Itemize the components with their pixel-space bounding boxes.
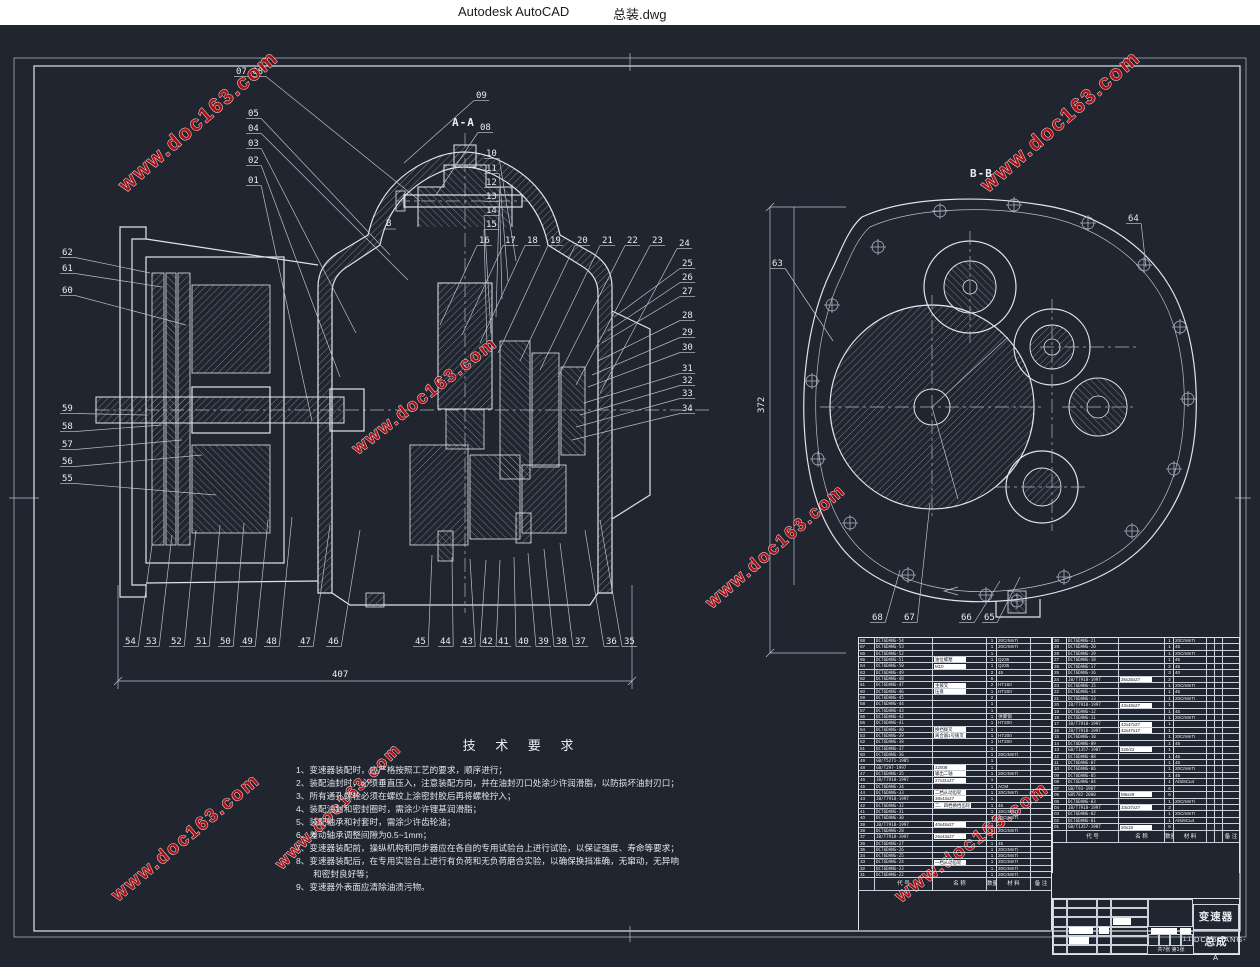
bom-cell: 45: [1174, 754, 1207, 759]
bom-cell: DCT6DANG-44: [875, 701, 933, 706]
bom-cell: HT200: [997, 689, 1031, 694]
bom-cell: [997, 777, 1031, 782]
bom-cell: 弹簧钢: [997, 714, 1031, 719]
bom-cell: 1: [987, 828, 997, 833]
bom-header-cell: 材 料: [997, 878, 1031, 890]
section-label-aa: A-A: [452, 116, 475, 129]
svg-text:27: 27: [682, 287, 693, 297]
bom-cell: 一档从动齿轮: [933, 859, 987, 864]
part-callout-51: 51: [194, 525, 220, 647]
bom-cell: 20CrMnTi: [1174, 811, 1207, 816]
bom-cell: [1215, 696, 1223, 701]
bom-cell: 45: [1174, 741, 1207, 746]
bom-cell: [1031, 803, 1051, 808]
bom-cell: [1223, 709, 1239, 714]
bom-cell: [933, 872, 987, 877]
svg-text:36: 36: [606, 637, 617, 647]
bom-cell: [1207, 709, 1215, 714]
bom-cell: 46: [859, 777, 875, 782]
bom-cell: [1119, 664, 1165, 669]
bom-cell: Q235: [997, 663, 1031, 668]
bom-cell: [1207, 683, 1215, 688]
bolt-hole-symbol: [824, 297, 840, 313]
bom-cell: 45: [1174, 644, 1207, 649]
bom-cell: DCT6DANG-06: [1067, 766, 1119, 771]
bom-cell: 45: [997, 841, 1031, 846]
bom-cell: [933, 714, 987, 719]
bom-cell: [1207, 638, 1215, 643]
part-callout-19: 19: [498, 236, 563, 353]
bom-cell: [1215, 670, 1223, 675]
bom-cell: 1: [987, 733, 997, 738]
svg-text:02: 02: [248, 156, 259, 166]
svg-text:68: 68: [872, 613, 883, 623]
bom-cell: 12: [1053, 754, 1067, 759]
bom-cell: 42x47x27: [1119, 721, 1165, 726]
bom-cell: DCT6DANG-19: [1067, 651, 1119, 656]
bom-cell: 1: [1165, 721, 1174, 726]
bom-cell: 43x48x27: [1119, 702, 1165, 707]
bom-cell: [1119, 638, 1165, 643]
bom-cell: [1174, 805, 1207, 810]
svg-text:10: 10: [486, 149, 497, 159]
bom-cell: [1031, 714, 1051, 719]
bom-cell: [1031, 638, 1051, 643]
section-view-b: B-B 37: [757, 167, 1196, 657]
bom-cell: 1: [1165, 811, 1174, 816]
bom-cell: [1119, 734, 1165, 739]
bom-cell: DCT6DANG-52: [875, 651, 933, 656]
bom-cell: DCT6DANG-43: [875, 708, 933, 713]
bom-cell: JB/T7918-1997: [1067, 721, 1119, 726]
bom-cell: DCT6DANG-16: [1067, 670, 1119, 675]
svg-text:58: 58: [62, 422, 73, 432]
bom-header-cell: 代 号: [1067, 831, 1119, 842]
bom-cell: [1223, 638, 1239, 643]
technical-requirements: 技 术 要 求 1、变速器装配时，应严格按照工艺的要求，顺序进行；2、装配油封时…: [296, 735, 748, 894]
bom-cell: [1223, 689, 1239, 694]
bom-cell: DCT6DANG-39: [875, 733, 933, 738]
bom-cell: [1031, 727, 1051, 732]
bom-cell: DCT6DANG-33: [875, 790, 933, 795]
svg-text:48: 48: [266, 637, 277, 647]
bom-cell: 49: [859, 758, 875, 763]
bom-cell: JB/T7918-1997: [1067, 805, 1119, 810]
bom-cell: 32: [859, 866, 875, 871]
bom-cell: [1223, 741, 1239, 746]
svg-text:39: 39: [538, 637, 549, 647]
bom-cell: DCT6DANG-02: [1067, 811, 1119, 816]
bolt-hole-symbol: [1056, 569, 1072, 585]
bom-cell: [1119, 741, 1165, 746]
tech-requirement-line: 2、装配油封时，必须垂直压入，注意装配方向，并在油封刃口处涂少许润滑脂，以防损坏…: [296, 777, 748, 790]
bom-cell: DCT6DANG-51: [875, 657, 933, 662]
svg-text:57: 57: [62, 440, 73, 450]
bom-cell: [1223, 677, 1239, 682]
bom-cell: 66: [859, 651, 875, 656]
bom-cell: [997, 758, 1031, 763]
bom-cell: 45: [1174, 709, 1207, 714]
bom-cell: ACM: [997, 784, 1031, 789]
revision-grid-cell: [1067, 945, 1097, 954]
bom-header-cell: [1053, 831, 1067, 842]
part-name-highlight: M6x28: [1120, 792, 1152, 797]
bom-cell: [1223, 811, 1239, 816]
bom-cell: [1207, 811, 1215, 816]
svg-text:22: 22: [627, 236, 638, 246]
bolt-hole-symbol: [1006, 197, 1022, 213]
watermark-text: www.doc163.com: [701, 480, 850, 613]
bom-cell: 1: [1165, 734, 1174, 739]
bom-cell: [1174, 702, 1207, 707]
bom-cell: 2: [987, 682, 997, 687]
svg-text:16: 16: [479, 236, 490, 246]
svg-text:40: 40: [518, 637, 529, 647]
part-callout-45: 45: [413, 555, 432, 647]
bom-cell: 1: [1165, 638, 1174, 643]
bom-cell: [1031, 733, 1051, 738]
bom-cell: 45: [997, 803, 1031, 808]
bom-cell: 20CrMnTi: [997, 872, 1031, 877]
tech-requirement-line: 9、变速器外表面应清除油渍污物。: [296, 881, 748, 894]
revision-grid-cell: [1111, 908, 1148, 917]
bom-cell: HT200: [997, 720, 1031, 725]
bom-cell: 28: [1053, 651, 1067, 656]
bom-cell: [1207, 747, 1215, 752]
part-callout-53: 53: [144, 535, 172, 647]
part-callout-52: 52: [169, 530, 196, 647]
part-callout-67: 67: [902, 503, 930, 623]
bom-cell: 18: [1053, 715, 1067, 720]
part-callout-38: 38: [544, 549, 569, 647]
bom-cell: [1207, 689, 1215, 694]
bom-cell: 2: [1165, 664, 1174, 669]
bom-cell: [1031, 847, 1051, 852]
revision-grid-cell: [1097, 917, 1111, 926]
bom-cell: [1174, 677, 1207, 682]
bom-cell: 36: [859, 841, 875, 846]
bom-cell: 45: [1174, 664, 1207, 669]
bolt-hole-symbol: [804, 373, 820, 389]
title-block-drawing-number: DCT6DANG-A: [1193, 930, 1239, 954]
bom-cell: HT200: [997, 733, 1031, 738]
bolt-hole-symbol: [932, 203, 948, 219]
bom-cell: JB/T7918-1997: [875, 777, 933, 782]
bom-header-cell: 代 号: [875, 878, 933, 890]
bom-cell: 20CrMnTi: [1174, 715, 1207, 720]
bom-cell: 1: [987, 790, 997, 795]
bom-cell: [1031, 720, 1051, 725]
part-name-highlight: 42x47x27: [1120, 722, 1152, 727]
bom-cell: [1119, 818, 1165, 823]
bom-cell: 45: [997, 670, 1031, 675]
bom-cell: [1215, 799, 1223, 804]
bom-cell: [1215, 760, 1223, 765]
bom-cell: 40: [1174, 670, 1207, 675]
bom-cell: [1223, 657, 1239, 662]
bom-cell: HT200: [997, 739, 1031, 744]
part-name-highlight: M10: [934, 664, 966, 669]
bom-cell: M10: [933, 663, 987, 668]
bom-cell: [1031, 701, 1051, 706]
bom-cell: DCT6DANG-01: [1067, 818, 1119, 823]
bom-cell: [1174, 721, 1207, 726]
bom-cell: [1031, 651, 1051, 656]
svg-text:11: 11: [486, 164, 497, 174]
bom-cell: [1119, 657, 1165, 662]
bom-cell: DCT6DANG-10: [1067, 734, 1119, 739]
bom-cell: [1207, 651, 1215, 656]
bom-cell: DCT6DANG-47: [875, 682, 933, 687]
bom-cell: 39: [859, 822, 875, 827]
bom-cell: [1223, 702, 1239, 707]
revision-grid-cell: [1111, 945, 1148, 954]
bom-cell: DCT6DANG-05: [1067, 773, 1119, 778]
title-block-empty-cell: [1148, 899, 1193, 927]
part-callout-41: 41: [496, 560, 511, 647]
bom-cell: 25: [1053, 670, 1067, 675]
bom-cell: [1119, 709, 1165, 714]
title-block-cell: [1148, 934, 1159, 946]
svg-text:05: 05: [248, 109, 259, 119]
bom-cell: [1031, 644, 1051, 649]
bom-cell: 1: [987, 771, 997, 776]
bom-cell: 1: [987, 859, 997, 864]
bom-cell: 20CrMnTi: [1174, 638, 1207, 643]
part-name-highlight: 25x43x27: [934, 834, 966, 839]
bom-cell: [1215, 657, 1223, 662]
bom-cell: [1215, 709, 1223, 714]
bom-cell: [997, 695, 1031, 700]
bom-cell: [933, 708, 987, 713]
bom-cell: 38x43x27: [933, 796, 987, 801]
bom-cell: [997, 746, 1031, 751]
bom-header-cell: [1215, 831, 1223, 842]
bom-cell: DCT6DANG-34: [875, 784, 933, 789]
bom-cell: 1: [987, 689, 997, 694]
bom-cell: 压盘: [933, 689, 987, 694]
bom-cell: JB/T7918-1997: [1067, 677, 1119, 682]
bom-cell: 38: [859, 828, 875, 833]
bom-cell: 59: [859, 695, 875, 700]
bom-cell: JB/T7918-1997: [875, 822, 933, 827]
svg-text:52: 52: [171, 637, 182, 647]
bom-cell: [1207, 805, 1215, 810]
svg-text:56: 56: [62, 457, 73, 467]
bom-cell: 20CrMnTi: [997, 815, 1031, 820]
bom-cell: DCT6DANG-25: [875, 853, 933, 858]
svg-text:61: 61: [62, 264, 73, 274]
bom-cell: 05: [1053, 799, 1067, 804]
bom-cell: [1031, 790, 1051, 795]
bom-cell: 20CrMnTi: [997, 847, 1031, 852]
bom-cell: 27x31x27: [933, 777, 987, 782]
bom-cell: DCT6DANG-28: [875, 828, 933, 833]
part-callout-42: 42: [480, 560, 495, 647]
bom-cell: DCT6DANG-21: [1067, 638, 1119, 643]
bom-cell: [1207, 664, 1215, 669]
bom-cell: DCT6DANG-38: [875, 739, 933, 744]
svg-text:65: 65: [984, 613, 995, 623]
bom-cell: [997, 834, 1031, 839]
bom-cell: [1223, 799, 1239, 804]
bom-cell: 54: [859, 727, 875, 732]
svg-text:12: 12: [486, 178, 497, 188]
bom-cell: [933, 739, 987, 744]
bom-cell: [1223, 728, 1239, 733]
bom-cell: DCT6DANG-37: [875, 746, 933, 751]
bom-cell: [1215, 786, 1223, 791]
bom-cell: [1031, 828, 1051, 833]
part-callout-44: 44: [438, 557, 453, 647]
tech-requirement-line: 6、差动轴承调整间隙为0.5~1mm；: [296, 829, 748, 842]
bom-cell: [1223, 696, 1239, 701]
bom-cell: [1207, 644, 1215, 649]
bom-cell: 04: [1053, 805, 1067, 810]
bom-cell: 48: [859, 765, 875, 770]
bom-cell: 45: [1174, 689, 1207, 694]
bom-cell: 13: [1053, 747, 1067, 752]
svg-text:30: 30: [682, 343, 693, 353]
bom-cell: 34: [859, 853, 875, 858]
bom-cell: 29: [1053, 644, 1067, 649]
bom-cell: [933, 746, 987, 751]
bom-cell: 1: [987, 714, 997, 719]
svg-text:31: 31: [682, 364, 693, 374]
bom-cell: 二、四档换挡齿轮: [933, 803, 987, 808]
svg-text:29: 29: [682, 328, 693, 338]
bom-cell: [933, 853, 987, 858]
bom-cell: DCT6DANG-27: [875, 841, 933, 846]
bom-cell: [1119, 683, 1165, 688]
bom-cell: 45: [1174, 773, 1207, 778]
svg-text:51: 51: [196, 637, 207, 647]
bom-cell: [1207, 786, 1215, 791]
bom-cell: [1174, 747, 1207, 752]
watermark-text: www.doc163.com: [107, 770, 264, 907]
bom-cell: [1031, 777, 1051, 782]
bom-cell: 1: [987, 644, 997, 649]
dim-407: 407: [332, 670, 348, 680]
bom-cell: [1223, 760, 1239, 765]
bom-cell: [1223, 805, 1239, 810]
bom-cell: 03: [1053, 811, 1067, 816]
bom-cell: [1031, 809, 1051, 814]
bom-cell: [1031, 676, 1051, 681]
bom-cell: 主拨叉: [933, 682, 987, 687]
bom-cell: [1215, 754, 1223, 759]
part-callout-39: 39: [528, 553, 551, 647]
bolt-hole-symbol: [900, 567, 916, 583]
part-callout-26: 26: [608, 273, 695, 331]
revision-grid-cell: [1097, 936, 1111, 945]
bom-cell: [1031, 765, 1051, 770]
bom-cell: [1207, 734, 1215, 739]
bom-cell: GB/T93-1987: [1067, 786, 1119, 791]
bom-cell: [1223, 824, 1239, 829]
bom-cell: [1119, 799, 1165, 804]
bom-cell: 1: [1165, 818, 1174, 823]
tech-requirement-line: 5、装配轴承和衬套时，需涂少许齿轮油；: [296, 816, 748, 829]
svg-text:55: 55: [62, 474, 73, 484]
title-block-cell: [1170, 934, 1181, 946]
bom-cell: 63: [859, 670, 875, 675]
bom-cell: [1174, 792, 1207, 797]
bom-cell: [1223, 747, 1239, 752]
bom-cell: [1207, 741, 1215, 746]
bom-cell: 1: [1165, 760, 1174, 765]
bom-cell: GB/T5271-1985: [875, 758, 933, 763]
bom-cell: [1031, 663, 1051, 668]
svg-text:21: 21: [602, 236, 613, 246]
section-arrow-b: B: [386, 219, 391, 229]
bom-cell: 1: [987, 841, 997, 846]
bom-cell: 20CrMnTi: [997, 809, 1031, 814]
bom-cell: 45: [1174, 760, 1207, 765]
bom-cell: 1: [1165, 689, 1174, 694]
bom-cell: 1: [987, 872, 997, 877]
bom-cell: 1: [987, 708, 997, 713]
part-name-highlight: 压盘: [934, 689, 966, 694]
dim-372: 372: [757, 397, 767, 413]
bom-cell: [1031, 739, 1051, 744]
bom-cell: [1215, 818, 1223, 823]
cad-canvas[interactable]: 407 A-A B B-B: [0, 25, 1260, 925]
bom-cell: 27: [1053, 657, 1067, 662]
bom-cell: DCT6DANG-07: [1067, 760, 1119, 765]
bom-cell: 47: [859, 771, 875, 776]
svg-text:03: 03: [248, 139, 259, 149]
technical-requirements-title: 技 术 要 求: [296, 735, 748, 754]
bom-cell: 1: [987, 834, 997, 839]
bom-cell: DCT6DANG-53: [875, 644, 933, 649]
bom-cell: 20CrMnTi: [1174, 683, 1207, 688]
bolt-hole-symbol: [1180, 391, 1196, 407]
bom-cell: 1: [987, 866, 997, 871]
watermark-text: www.doc163.com: [113, 46, 282, 197]
bom-cell: 6: [1165, 786, 1174, 791]
tech-requirement-line: 和密封良好等；: [296, 868, 748, 881]
bom-cell: DCT6DANG-45: [875, 695, 933, 700]
bom-cell: DCT6DANG-14: [1067, 689, 1119, 694]
bom-cell: 45: [859, 784, 875, 789]
bom-cell: [1031, 866, 1051, 871]
watermark-text: www.doc163.com: [0, 25, 7, 134]
bom-cell: [933, 695, 987, 700]
svg-text:49: 49: [242, 637, 253, 647]
bom-cell: 20CrMnTi: [997, 752, 1031, 757]
revision-grid-cell: [1097, 945, 1111, 954]
bom-cell: [997, 701, 1031, 706]
revision-grid-cell: [1067, 899, 1097, 908]
bom-cell: [1215, 824, 1223, 829]
bom-cell: [1223, 754, 1239, 759]
title-block-highlight-box: [1113, 918, 1131, 925]
bom-cell: 56: [859, 714, 875, 719]
bom-cell: 1: [1165, 754, 1174, 759]
bom-cell: 1: [1165, 651, 1174, 656]
bom-cell: [1031, 670, 1051, 675]
bom-cell: 62: [859, 676, 875, 681]
bom-cell: [1207, 779, 1215, 784]
bom-cell: 30: [1053, 638, 1067, 643]
bom-cell: [997, 651, 1031, 656]
title-block-highlight-box: [1099, 927, 1109, 934]
bom-cell: 1: [987, 638, 997, 643]
bom-cell: [1207, 799, 1215, 804]
bom-cell: HT150: [997, 682, 1031, 687]
bom-cell: 35: [859, 847, 875, 852]
